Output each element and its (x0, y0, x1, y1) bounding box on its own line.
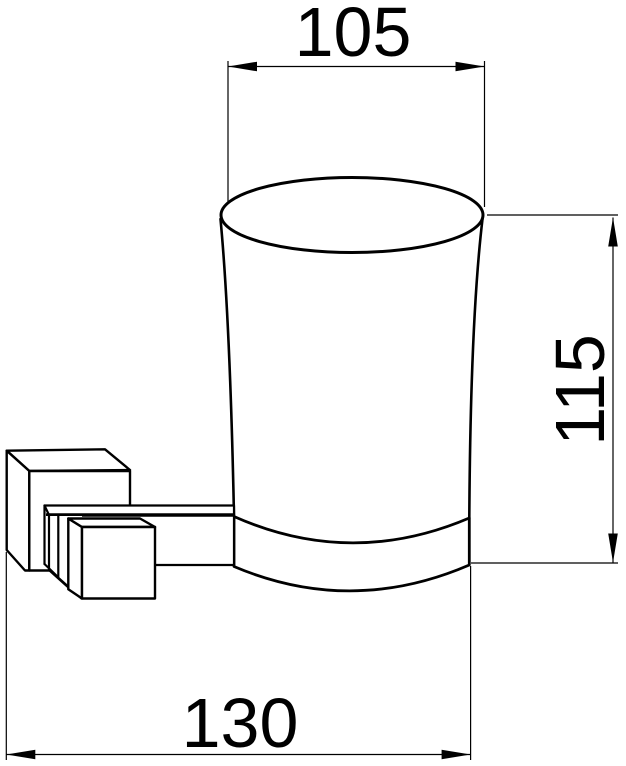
dimension-bottom-label: 130 (182, 684, 299, 762)
knob-top-face (68, 519, 155, 528)
cup-right-side (469, 219, 482, 518)
dimension-arrow-right-icon (442, 750, 471, 760)
tumbler-cup (221, 178, 484, 519)
drawing-canvas: 105 115 130 (0, 0, 626, 766)
wall-bracket (7, 449, 234, 599)
knob-front-face (82, 527, 155, 599)
knob-left-face (68, 519, 82, 599)
dimension-right-label: 115 (541, 334, 619, 446)
cup-left-side (221, 219, 235, 517)
holder-ring-band (234, 517, 469, 591)
dimension-arrow-left-icon (228, 62, 257, 72)
dimension-top: 105 (228, 0, 485, 207)
dimension-right: 115 (471, 215, 619, 563)
wall-plate-left-face (7, 451, 30, 571)
technical-drawing: 105 115 130 (0, 0, 626, 766)
dimension-arrow-right-icon (456, 62, 485, 72)
dimension-top-label: 105 (295, 0, 412, 71)
holder-ring (234, 517, 469, 591)
dimension-arrow-up-icon (608, 218, 618, 247)
dimension-arrow-left-icon (6, 750, 35, 760)
cup-rim-ellipse (221, 178, 483, 253)
dimension-arrow-down-icon (608, 534, 618, 563)
